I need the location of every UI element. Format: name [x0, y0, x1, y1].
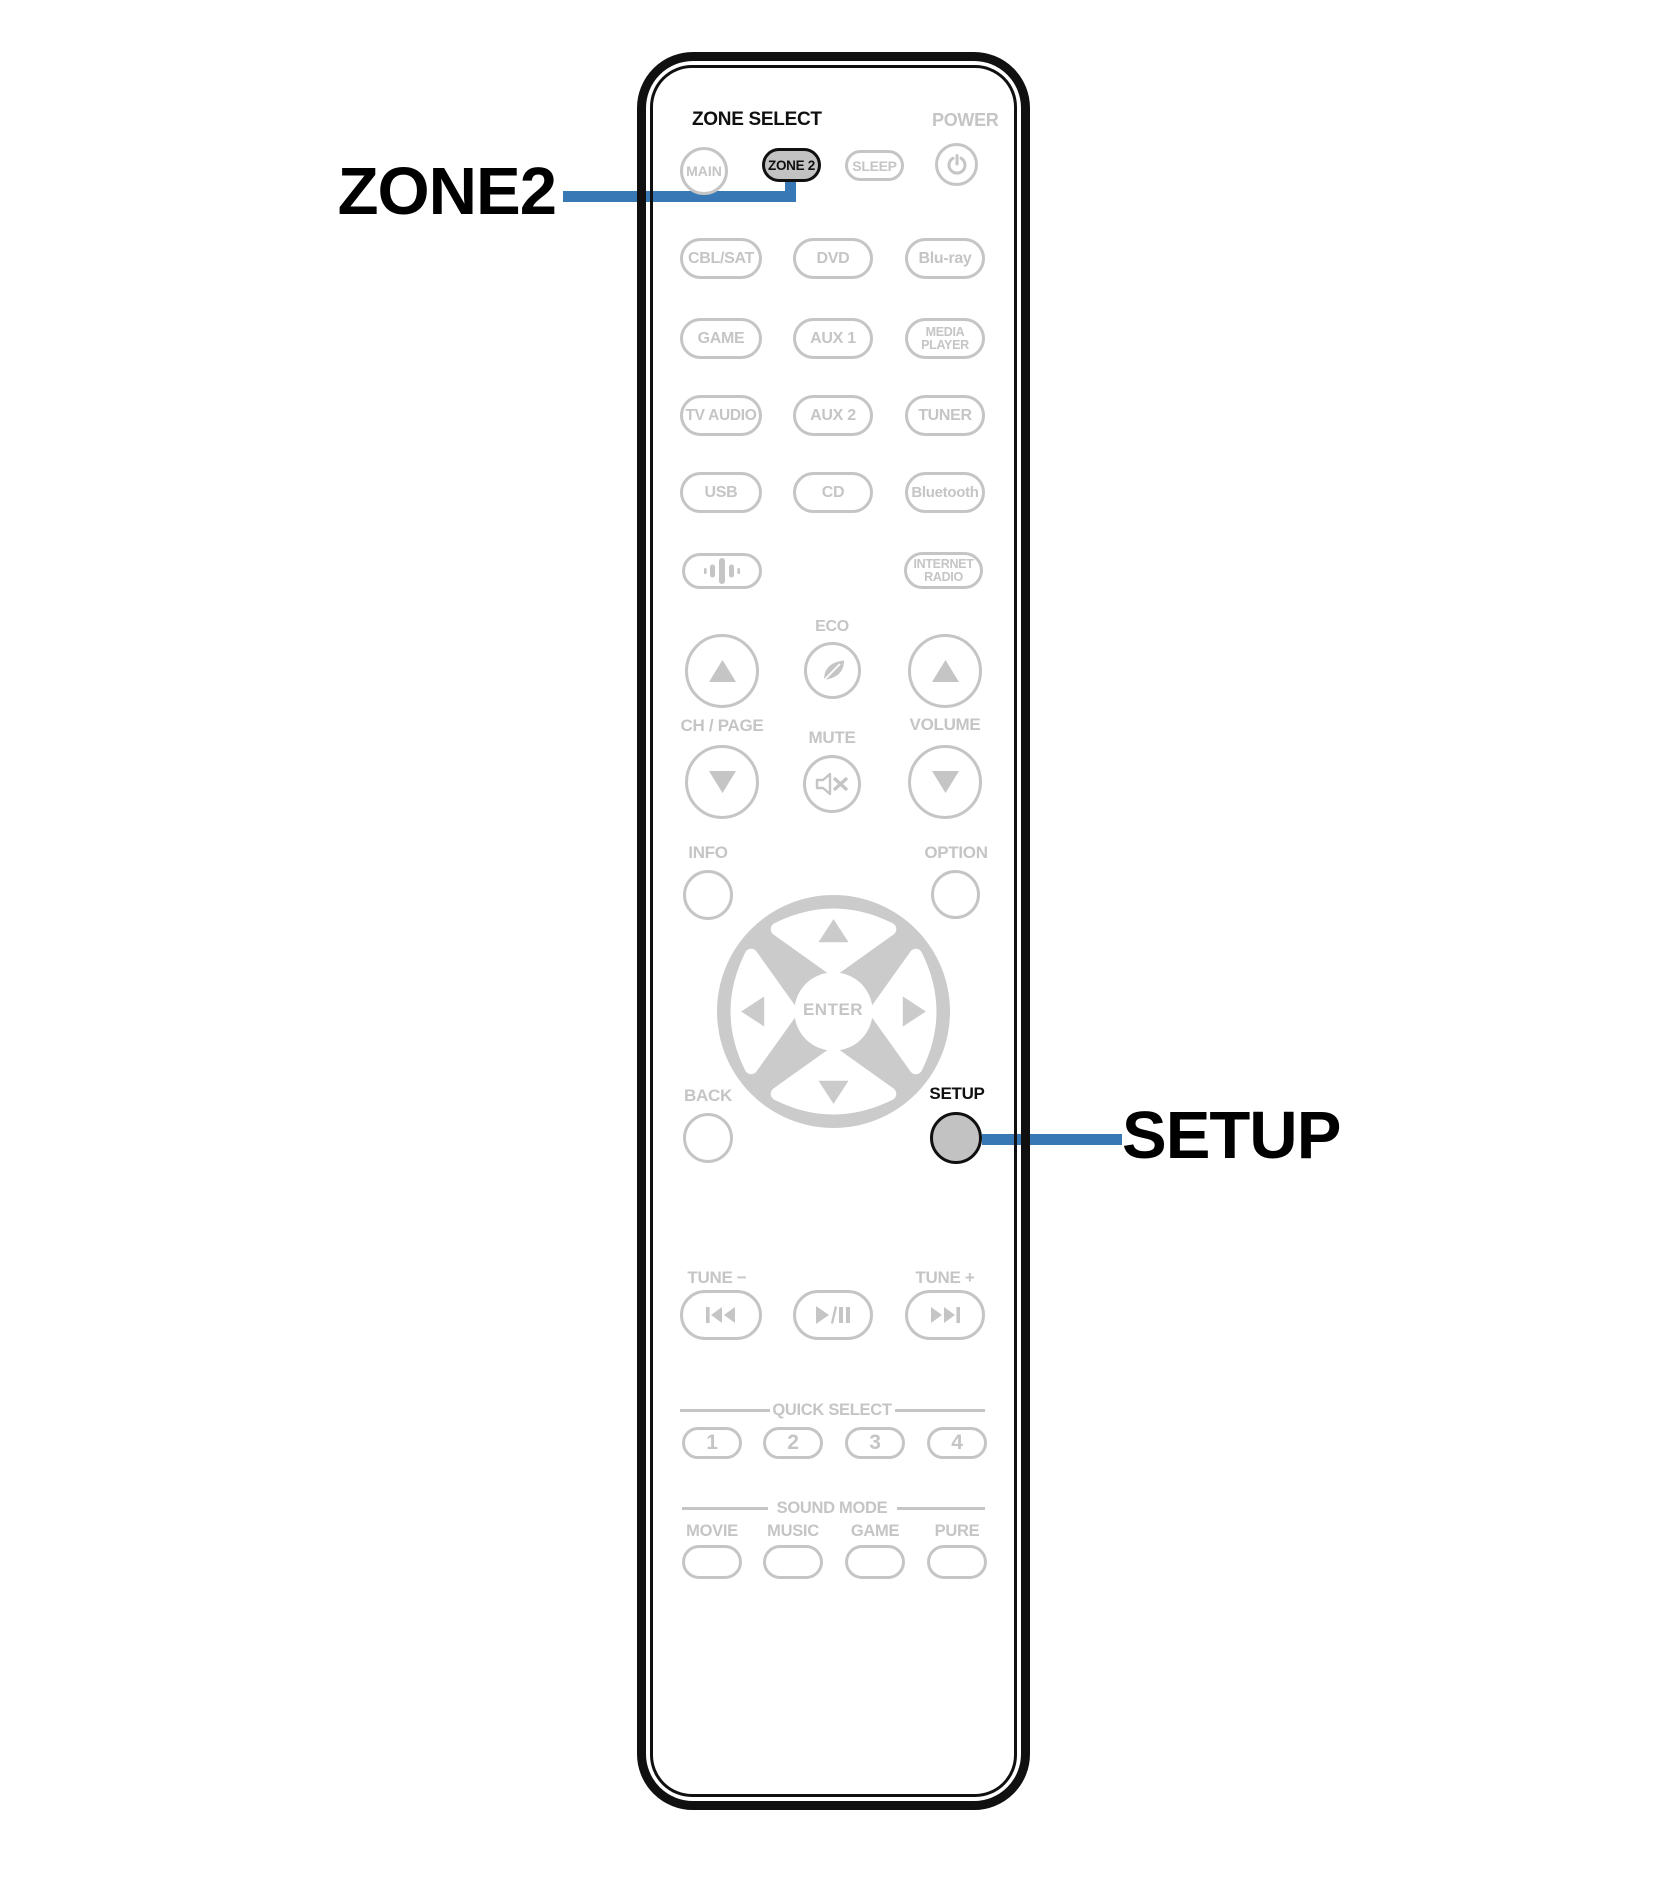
remote-control-body: ZONE SELECT POWER MAIN ZONE 2 SLEEP CBL/… — [637, 52, 1030, 1810]
mute-icon — [815, 771, 849, 797]
tune-plus-label: TUNE + — [900, 1268, 990, 1288]
quick-select-label: QUICK SELECT — [772, 1401, 892, 1420]
play-pause-icon — [815, 1306, 851, 1324]
source-usb-button[interactable]: USB — [680, 472, 762, 513]
source-tv-audio-button[interactable]: TV AUDIO — [680, 395, 762, 436]
leaf-icon — [817, 655, 849, 687]
zone-select-label: ZONE SELECT — [692, 109, 822, 131]
source-tuner-button[interactable]: TUNER — [905, 395, 985, 436]
eco-label: ECO — [777, 618, 887, 636]
quick-select-4-button[interactable]: 4 — [927, 1427, 987, 1459]
power-label: POWER — [932, 110, 999, 131]
back-button[interactable] — [683, 1113, 733, 1163]
sound-mode-label: SOUND MODE — [772, 1499, 892, 1518]
enter-label: ENTER — [783, 1000, 883, 1020]
tune-minus-label: TUNE − — [672, 1268, 762, 1288]
sound-mode-pure-button[interactable] — [927, 1545, 987, 1579]
heos-icon — [699, 558, 745, 584]
sound-mode-game-label: GAME — [835, 1522, 915, 1541]
source-game-button[interactable]: GAME — [680, 318, 762, 359]
channel-page-down-button[interactable] — [685, 745, 759, 819]
power-icon — [946, 154, 968, 176]
media-player-label-line2: PLAYER — [921, 339, 969, 352]
sound-mode-music-label: MUSIC — [753, 1522, 833, 1541]
zone2-button[interactable]: ZONE 2 — [762, 148, 821, 182]
setup-callout-label: SETUP — [1122, 1102, 1340, 1169]
eco-button[interactable] — [804, 642, 861, 699]
source-bluetooth-button[interactable]: Bluetooth — [905, 472, 985, 513]
setup-label: SETUP — [917, 1084, 997, 1104]
play-pause-button[interactable] — [793, 1290, 873, 1340]
option-label: OPTION — [916, 843, 996, 863]
skip-back-button[interactable] — [680, 1290, 762, 1340]
quick-select-divider-right — [895, 1409, 985, 1412]
sleep-button[interactable]: SLEEP — [845, 150, 904, 181]
internet-radio-label-line2: RADIO — [924, 571, 963, 584]
source-blu-ray-button[interactable]: Blu-ray — [905, 238, 985, 279]
sound-mode-game-button[interactable] — [845, 1545, 905, 1579]
down-triangle-icon — [709, 771, 736, 793]
volume-label: VOLUME — [890, 715, 1000, 735]
setup-button[interactable] — [930, 1112, 982, 1164]
heos-button[interactable] — [682, 553, 762, 589]
source-cd-button[interactable]: CD — [793, 472, 873, 513]
skip-back-icon — [705, 1306, 737, 1324]
source-aux1-button[interactable]: AUX 1 — [793, 318, 873, 359]
zone2-callout-label: ZONE2 — [300, 158, 556, 225]
info-label: INFO — [668, 843, 748, 863]
skip-forward-icon — [929, 1306, 961, 1324]
mute-button[interactable] — [803, 755, 861, 813]
internet-radio-button[interactable]: INTERNET RADIO — [904, 552, 983, 589]
power-button[interactable] — [935, 143, 978, 186]
sound-mode-music-button[interactable] — [763, 1545, 823, 1579]
source-dvd-button[interactable]: DVD — [793, 238, 873, 279]
internet-radio-label-line1: INTERNET — [913, 558, 973, 571]
down-triangle-icon — [932, 771, 959, 793]
volume-up-button[interactable] — [908, 634, 982, 708]
channel-page-label: CH / PAGE — [667, 716, 777, 736]
source-aux2-button[interactable]: AUX 2 — [793, 395, 873, 436]
back-label: BACK — [668, 1086, 748, 1106]
up-triangle-icon — [932, 660, 959, 682]
source-cbl-sat-button[interactable]: CBL/SAT — [680, 238, 762, 279]
up-triangle-icon — [709, 660, 736, 682]
main-zone-button[interactable]: MAIN — [680, 147, 728, 195]
sound-mode-movie-button[interactable] — [682, 1545, 742, 1579]
manual-diagram-remote-control: ZONE2 SETUP ZONE SELECT POWER MAIN ZONE … — [0, 0, 1665, 1878]
volume-down-button[interactable] — [908, 745, 982, 819]
sound-mode-divider-left — [682, 1507, 768, 1510]
quick-select-1-button[interactable]: 1 — [682, 1427, 742, 1459]
mute-label: MUTE — [787, 728, 877, 748]
channel-page-up-button[interactable] — [685, 634, 759, 708]
quick-select-2-button[interactable]: 2 — [763, 1427, 823, 1459]
media-player-label-line1: MEDIA — [926, 326, 965, 339]
sound-mode-movie-label: MOVIE — [672, 1522, 752, 1541]
sound-mode-divider-right — [897, 1507, 985, 1510]
sound-mode-pure-label: PURE — [917, 1522, 997, 1541]
skip-forward-button[interactable] — [905, 1290, 985, 1340]
quick-select-divider-left — [680, 1409, 770, 1412]
quick-select-3-button[interactable]: 3 — [845, 1427, 905, 1459]
source-media-player-button[interactable]: MEDIA PLAYER — [905, 318, 985, 359]
